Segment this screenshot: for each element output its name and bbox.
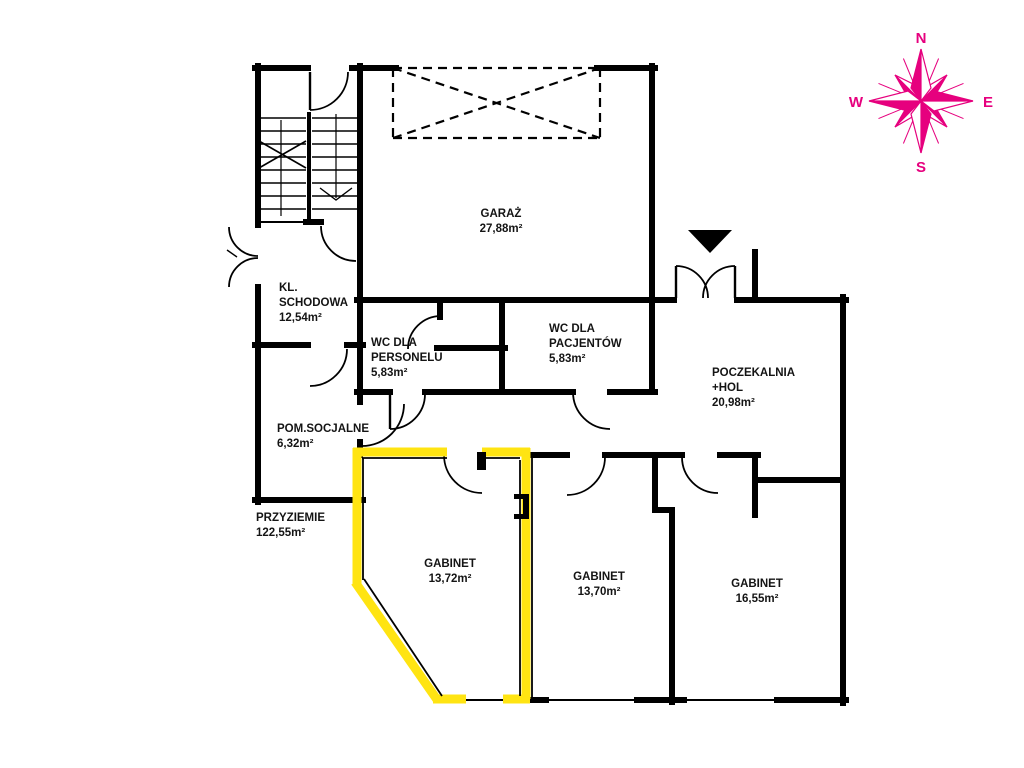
label-kl-schodowa-area: 12,54m² [279,312,322,324]
door-arc-kl-schodowa [310,349,347,386]
label-kl-schodowa: KL. [279,282,298,294]
staircase [259,112,357,222]
walls [255,66,846,703]
label-wc-personelu: WC DLA [371,337,417,349]
compass-rose-icon: N E S W [849,30,993,176]
door-arc-wc-personelu [390,394,425,429]
label-wc-pacjentow-2: PACJENTÓW [549,337,622,350]
label-gabinet-1-area: 13,72m² [429,573,472,585]
door-arc-entrance-lower [229,258,258,287]
door-arc-wc-pacjentow [573,392,610,429]
door-arc-stairwell [321,226,356,261]
label-gabinet-3: GABINET [731,578,783,590]
garage-door-dashed [393,68,600,138]
label-gabinet-1: GABINET [424,558,476,570]
label-gabinet-3-area: 16,55m² [736,593,779,605]
label-przyziemie: PRZYZIEMIE [256,512,325,524]
label-pom-socjalne-area: 6,32m² [277,438,314,450]
label-wc-pacjentow: WC DLA [549,323,595,335]
label-kl-schodowa-2: SCHODOWA [279,297,348,309]
entrance-arrow-icon [688,230,732,253]
label-wc-personelu-area: 5,83m² [371,367,408,379]
label-poczekalnia-2: +HOL [712,382,743,394]
compass-w: W [849,94,864,111]
label-gabinet-2: GABINET [573,571,625,583]
label-wc-pacjentow-area: 5,83m² [549,353,586,365]
door-arc-entrance-upper [229,227,258,256]
compass-s: S [916,159,926,176]
door-arc-gabinet-1 [444,455,482,493]
label-poczekalnia: POCZEKALNIA [712,367,795,379]
label-pom-socjalne: POM.SOCJALNE [277,423,369,435]
door-arc-gabinet-3 [682,457,718,493]
door-jamb [477,452,486,470]
label-garaz: GARAŻ [481,207,522,220]
label-przyziemie-area: 122,55m² [256,527,305,539]
door-arc-gabinet-2 [567,457,605,495]
label-gabinet-2-area: 13,70m² [578,586,621,598]
label-wc-personelu-2: PERSONELU [371,352,443,364]
door-arc-stair-top [310,72,348,110]
label-garaz-area: 27,88m² [480,223,523,235]
compass-n: N [916,30,927,47]
compass-e: E [983,94,993,111]
label-poczekalnia-area: 20,98m² [712,397,755,409]
window-lines [259,222,777,700]
floor-plan-canvas: GARAŻ 27,88m² KL. SCHODOWA 12,54m² WC DL… [0,0,1024,768]
floor-plan-svg: GARAŻ 27,88m² KL. SCHODOWA 12,54m² WC DL… [0,0,1024,768]
